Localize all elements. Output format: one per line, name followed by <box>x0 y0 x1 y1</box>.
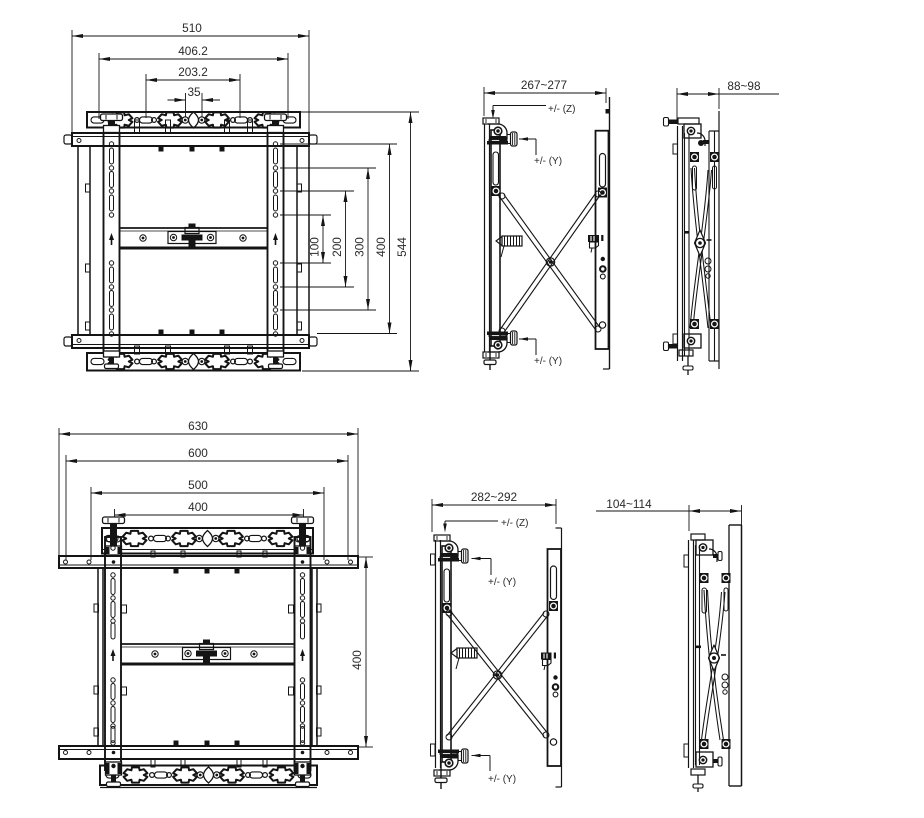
svg-text:630: 630 <box>188 419 208 433</box>
svg-text:+/- (Z): +/- (Z) <box>501 518 529 529</box>
svg-text:+/- (Y): +/- (Y) <box>488 774 516 785</box>
svg-text:544: 544 <box>395 237 409 257</box>
svg-text:400: 400 <box>188 500 208 514</box>
svg-text:+/- (Y): +/- (Y) <box>534 156 562 167</box>
svg-text:300: 300 <box>353 237 367 257</box>
svg-text:88~98: 88~98 <box>727 79 761 93</box>
svg-text:600: 600 <box>188 446 208 460</box>
svg-text:203.2: 203.2 <box>178 65 208 79</box>
svg-text:400: 400 <box>374 237 388 257</box>
svg-text:400: 400 <box>350 650 364 670</box>
svg-text:+/- (Y): +/- (Y) <box>488 577 516 588</box>
svg-text:104~114: 104~114 <box>606 497 652 511</box>
svg-text:510: 510 <box>182 21 202 35</box>
svg-text:282~292: 282~292 <box>471 490 517 504</box>
svg-text:100: 100 <box>308 237 322 257</box>
svg-text:406.2: 406.2 <box>178 44 208 58</box>
svg-text:267~277: 267~277 <box>521 78 567 92</box>
svg-text:+/- (Y): +/- (Y) <box>534 356 562 367</box>
svg-text:200: 200 <box>330 237 344 257</box>
svg-text:+/- (Z): +/- (Z) <box>548 104 576 115</box>
svg-text:500: 500 <box>188 478 208 492</box>
svg-text:35: 35 <box>187 85 201 99</box>
